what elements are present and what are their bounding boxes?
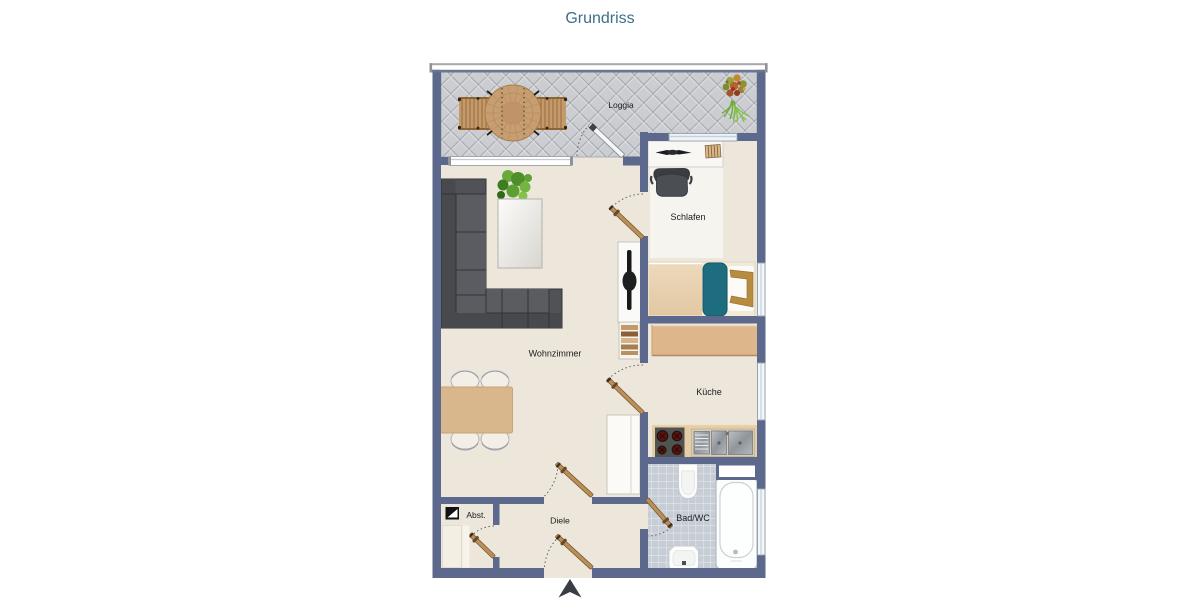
- svg-text:Abst.: Abst.: [466, 510, 485, 520]
- svg-text:Bad/WC: Bad/WC: [676, 513, 710, 523]
- svg-text:Küche: Küche: [696, 387, 722, 397]
- svg-text:Diele: Diele: [550, 516, 570, 526]
- svg-text:Loggia: Loggia: [608, 100, 634, 110]
- svg-text:Schlafen: Schlafen: [670, 212, 705, 222]
- svg-text:Grundriss: Grundriss: [565, 10, 634, 27]
- svg-text:Wohnzimmer: Wohnzimmer: [529, 349, 582, 359]
